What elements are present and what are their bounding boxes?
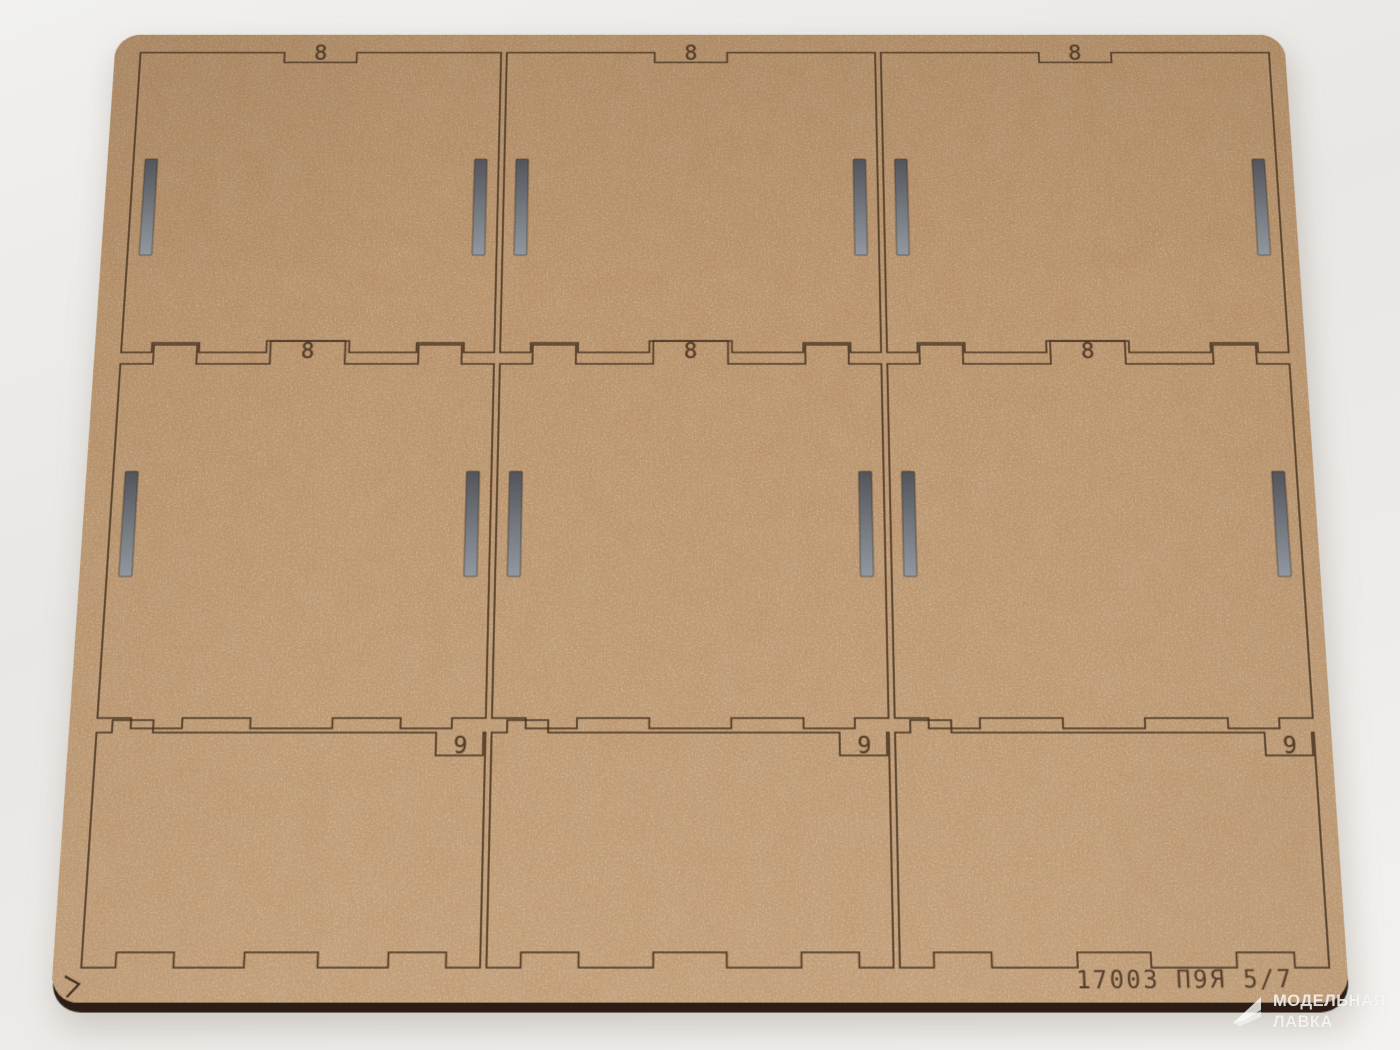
slot-cutout (119, 471, 139, 576)
modelnaya-lavka-logo-icon (1230, 990, 1266, 1034)
panel-outline-cut-panel-top-right (881, 53, 1289, 353)
slot-cutout (902, 471, 917, 576)
watermark-line1: МОДЕЛЬНАЯ (1273, 991, 1386, 1012)
panel-number-panel-top-right: 8 (1068, 42, 1082, 65)
panel-outline-cut-panel-bottom-center (486, 720, 893, 968)
panel-number-panel-top-center: 8 (684, 42, 697, 65)
panel-number-panel-bottom-left: 9 (453, 733, 468, 760)
slot-cutout (514, 159, 529, 255)
mdf-sheet-wrapper: 888888999 17003 П9Я 5/7 (50, 35, 1349, 1003)
slot-cutout (859, 471, 874, 576)
panel-number-panel-middle-center: 8 (684, 339, 698, 364)
panel-number-panel-middle-right: 8 (1081, 339, 1096, 364)
corner-alignment-mark-icon (63, 976, 79, 997)
panel-outline-cut-panel-middle-center (492, 341, 889, 728)
panel-outline-cut-panel-middle-left (97, 341, 495, 728)
panel-outline-cut-panel-middle-right (887, 341, 1314, 728)
panel-number-panel-bottom-center: 9 (857, 733, 872, 760)
photo-scene: 888888999 17003 П9Я 5/7 МОДЕЛЬНАЯ ЛАВКА (0, 0, 1400, 1050)
watermark: МОДЕЛЬНАЯ ЛАВКА (1230, 990, 1386, 1034)
panel-number-panel-bottom-right: 9 (1282, 733, 1298, 760)
slot-cutout (853, 159, 867, 255)
panel-outline-cut-panel-bottom-right (895, 720, 1330, 968)
panel-number-panel-middle-left: 8 (300, 339, 315, 364)
panel-number-panel-top-left: 8 (314, 42, 328, 65)
watermark-line2: ЛАВКА (1273, 1012, 1386, 1033)
slot-cutout (139, 159, 158, 255)
mdf-sheet: 888888999 17003 П9Я 5/7 (50, 35, 1349, 1003)
slot-cutout (472, 159, 487, 255)
sheet-code-engraving: 17003 П9Я 5/7 (850, 965, 1294, 996)
slot-cutout (464, 471, 480, 576)
panel-outline-cut-panel-bottom-left (81, 720, 486, 968)
slot-cutout (1272, 471, 1292, 576)
slot-cutout (895, 159, 910, 255)
laser-cut-pattern (50, 35, 1349, 1003)
slot-cutout (507, 471, 522, 576)
panel-outline-cut-panel-top-center (500, 53, 881, 353)
slot-cutout (1252, 159, 1271, 255)
panel-outline-cut-panel-top-left (121, 53, 501, 353)
